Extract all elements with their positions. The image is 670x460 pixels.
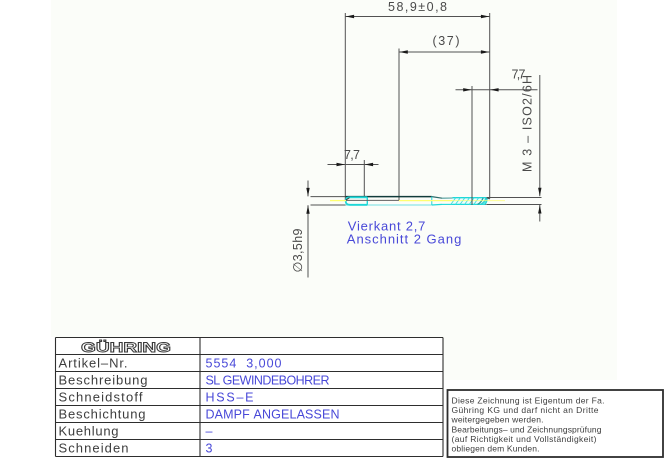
svg-text:HSS–E: HSS–E: [206, 391, 254, 405]
svg-text:DAMPF ANGELASSEN: DAMPF ANGELASSEN: [206, 408, 340, 422]
svg-text:58,9±0,8: 58,9±0,8: [388, 0, 447, 14]
svg-text:Schneiden: Schneiden: [59, 441, 129, 456]
svg-text:5554 3,000: 5554 3,000: [206, 357, 282, 371]
svg-text:GÜHRING: GÜHRING: [81, 339, 171, 355]
svg-text:Anschnitt 2 Gang: Anschnitt 2 Gang: [347, 231, 462, 246]
svg-text:weitergegeben werden.: weitergegeben werden.: [451, 415, 544, 425]
svg-text:Diese Zeichnung ist Eigentum d: Diese Zeichnung ist Eigentum der Fa.: [452, 396, 605, 406]
svg-text:(auf Richtigkeit und Vollständ: (auf Richtigkeit und Vollständigkeit): [452, 434, 597, 444]
svg-text:(37): (37): [433, 34, 460, 48]
svg-text:Beschichtung: Beschichtung: [59, 407, 146, 422]
svg-text:Beschreibung: Beschreibung: [59, 373, 148, 388]
svg-text:SL GEWINDEBOHRER: SL GEWINDEBOHRER: [206, 374, 330, 388]
svg-text:Kuehlung: Kuehlung: [59, 424, 119, 439]
svg-text:7,7: 7,7: [344, 148, 360, 162]
svg-text:Bearbeitungs– und Zeichnungspr: Bearbeitungs– und Zeichnungsprüfung: [452, 424, 602, 434]
svg-text:Artikel–Nr.: Artikel–Nr.: [59, 356, 128, 371]
svg-text:Schneidstoff: Schneidstoff: [59, 390, 143, 405]
svg-text:3: 3: [206, 442, 213, 456]
svg-text:M 3 – ISO2/6H: M 3 – ISO2/6H: [521, 75, 535, 172]
svg-text:–: –: [206, 425, 213, 439]
svg-text:∅3,5h9: ∅3,5h9: [291, 228, 305, 272]
svg-text:Gühring KG und darf nicht an D: Gühring KG und darf nicht an Dritte: [452, 405, 599, 415]
svg-text:obliegen dem Kunden.: obliegen dem Kunden.: [452, 444, 540, 454]
